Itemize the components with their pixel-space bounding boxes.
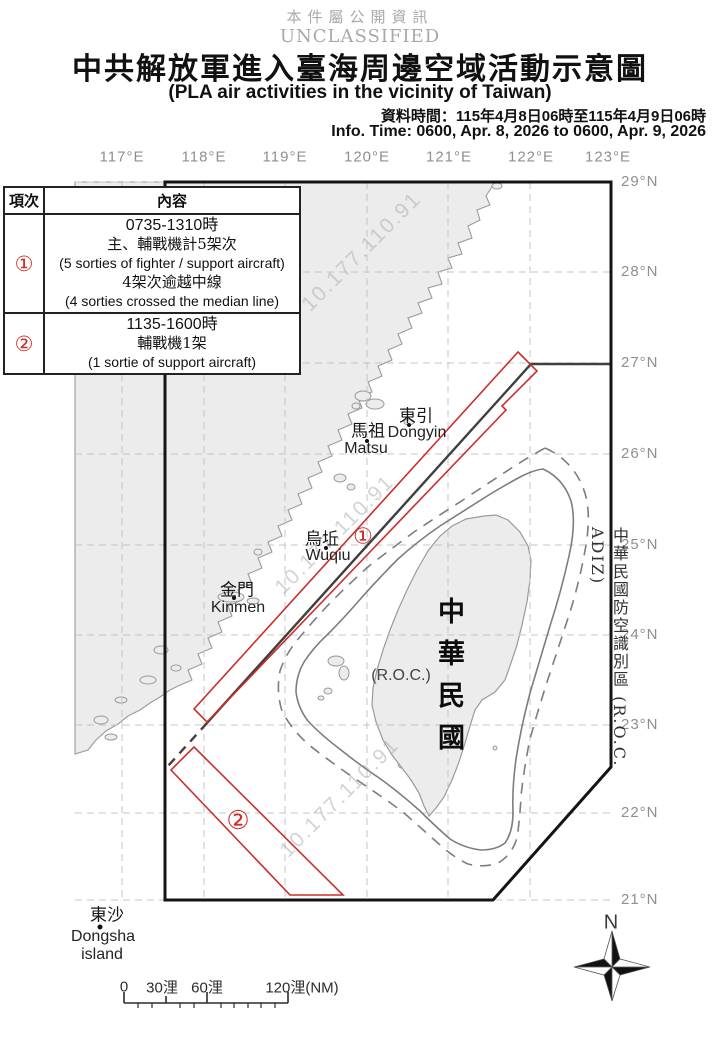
roc-adiz-label: 中華民國防空識別區 (R.O.C. ADIZ) [588,527,631,779]
route-1-map-badge: ① [353,525,373,550]
route-2-badge: ② [5,314,45,373]
dongsha-label-cn: 東沙 [90,901,124,926]
wuqiu-label-cn: 烏坵 [305,525,339,550]
route-2-map-badge: ② [226,806,249,836]
dongyin-label-cn: 東引 [399,402,433,427]
matsu-label-cn: 馬祖 [351,417,385,442]
dongsha-label-en2: island [81,946,123,964]
row2-time: 1135-1600時 [45,315,299,334]
row1-sorties-cn: 主、輔戰機計5架次 [45,235,299,254]
dongyin-label-en: Dongyin [388,424,447,442]
wuqiu-label-en: Wuqiu [305,547,350,565]
scale-0: 0 [120,979,128,996]
compass-north-label: N [604,912,618,935]
scale-120: 120浬(NM) [265,977,338,998]
legend-row-1: ① 0735-1310時 主、輔戰機計5架次 (5 sorties of fig… [5,215,299,314]
taiwan-name-label: 中華民國 [429,597,468,765]
legend-col-item: 項次 [5,188,45,213]
scale-60: 60浬 [191,977,223,998]
compass-rose-icon [574,931,650,1001]
matsu-label-en: Matsu [344,440,388,458]
row1-time: 0735-1310時 [45,216,299,235]
route-1-badge: ① [5,215,45,312]
row1-crossed-cn: 4架次逾越中線 [45,273,299,292]
roc-paren-label: (R.O.C.) [371,667,431,685]
row1-sorties-en: (5 sorties of fighter / support aircraft… [45,254,299,273]
legend-col-content: 內容 [45,188,299,213]
kinmen-label-en: Kinmen [211,599,265,617]
dongsha-label-en1: Dongsha [71,928,135,946]
pla-air-activity-map-page: 本件屬公開資訊 UNCLASSIFIED 中共解放軍進入臺海周邊空域活動示意圖 … [0,0,720,1040]
legend-row-2: ② 1135-1600時 輔戰機1架 (1 sortie of support … [5,314,299,373]
kinmen-label-cn: 金門 [220,576,254,601]
legend-header-row: 項次 內容 [5,188,299,215]
median-line-dashed [168,723,207,766]
scale-30: 30浬 [146,977,178,998]
row2-sorties-cn: 輔戰機1架 [45,334,299,353]
row2-sorties-en: (1 sortie of support aircraft) [45,353,299,372]
row1-crossed-en: (4 sorties crossed the median line) [45,292,299,311]
activity-legend-table: 項次 內容 ① 0735-1310時 主、輔戰機計5架次 (5 sorties … [3,186,301,375]
